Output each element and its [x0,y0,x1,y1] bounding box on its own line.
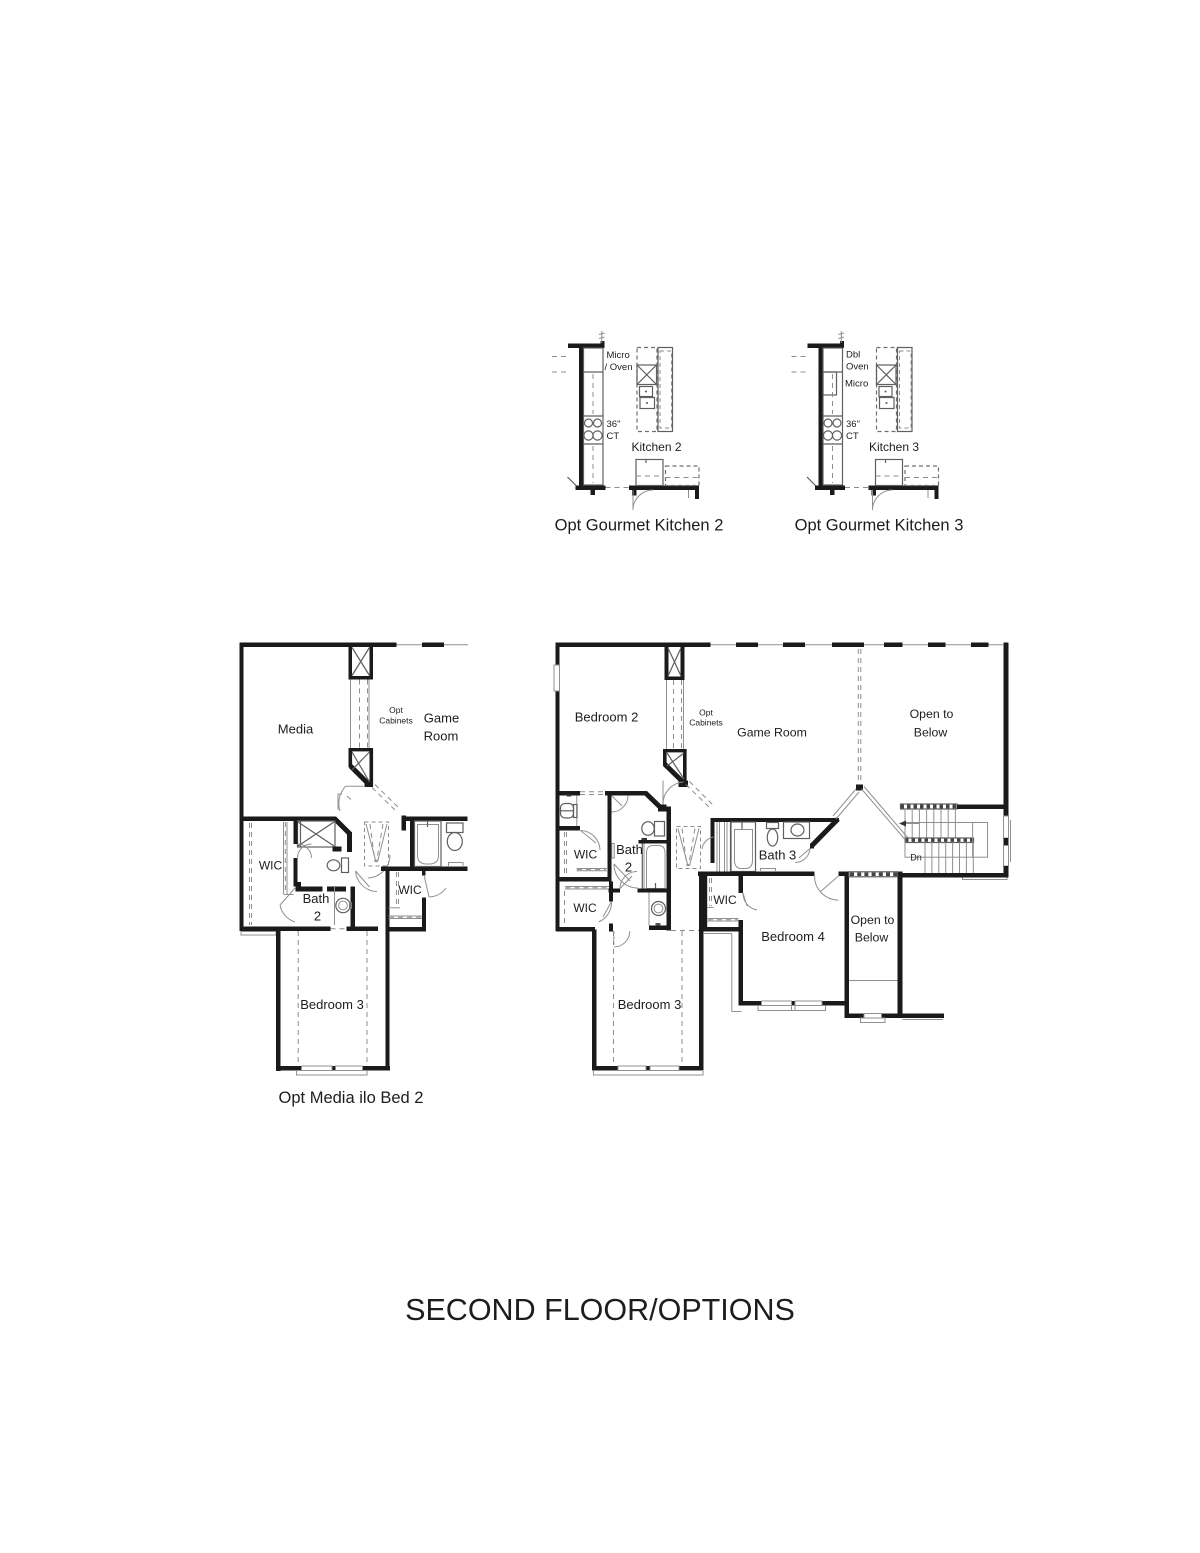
svg-text:36": 36" [846,419,860,430]
svg-text:Cabinets: Cabinets [379,716,413,726]
svg-text:Game: Game [424,711,459,726]
svg-text:Opt Gourmet Kitchen 3: Opt Gourmet Kitchen 3 [795,517,964,535]
svg-text:Open to: Open to [910,707,954,721]
svg-text:Micro: Micro [845,379,868,390]
svg-text:WIC: WIC [398,883,422,897]
svg-text:Bath: Bath [303,891,330,906]
svg-text:Bedroom 3: Bedroom 3 [300,997,364,1012]
svg-text:SECOND FLOOR/OPTIONS: SECOND FLOOR/OPTIONS [405,1293,795,1327]
svg-text:CT: CT [846,431,859,442]
svg-text:Opt Gourmet Kitchen 2: Opt Gourmet Kitchen 2 [555,517,724,535]
svg-text:Below: Below [855,931,889,945]
svg-text:Bedroom 3: Bedroom 3 [618,997,682,1012]
svg-text:Dn: Dn [910,853,922,863]
svg-text:WIC: WIC [573,901,597,915]
svg-text:Bedroom 2: Bedroom 2 [575,710,639,725]
svg-text:Opt: Opt [389,705,403,715]
svg-text:Oven: Oven [846,362,869,373]
svg-text:2: 2 [314,909,321,924]
svg-text:CT: CT [607,431,620,442]
svg-text:Media: Media [278,722,314,737]
svg-text:Open to: Open to [851,913,895,927]
svg-text:Cabinets: Cabinets [689,718,723,728]
svg-text:Kitchen 2: Kitchen 2 [631,440,681,454]
svg-text:2: 2 [625,860,632,875]
svg-text:Bath: Bath [616,842,643,857]
svg-text:Below: Below [914,726,948,740]
svg-text:Room: Room [424,729,459,744]
svg-text:Micro: Micro [607,350,630,361]
svg-text:WIC: WIC [574,848,598,862]
svg-text:36": 36" [607,419,621,430]
svg-text:Game Room: Game Room [737,726,807,740]
svg-text:/ Oven: / Oven [605,362,633,373]
svg-text:Opt Media ilo Bed 2: Opt Media ilo Bed 2 [279,1089,424,1107]
svg-text:Opt: Opt [699,708,713,718]
svg-text:Kitchen 3: Kitchen 3 [869,440,919,454]
svg-text:Bath 3: Bath 3 [759,848,797,863]
svg-text:WIC: WIC [713,893,737,907]
svg-text:Dbl: Dbl [846,350,860,361]
svg-text:Bedroom 4: Bedroom 4 [761,929,825,944]
svg-text:WIC: WIC [259,859,283,873]
